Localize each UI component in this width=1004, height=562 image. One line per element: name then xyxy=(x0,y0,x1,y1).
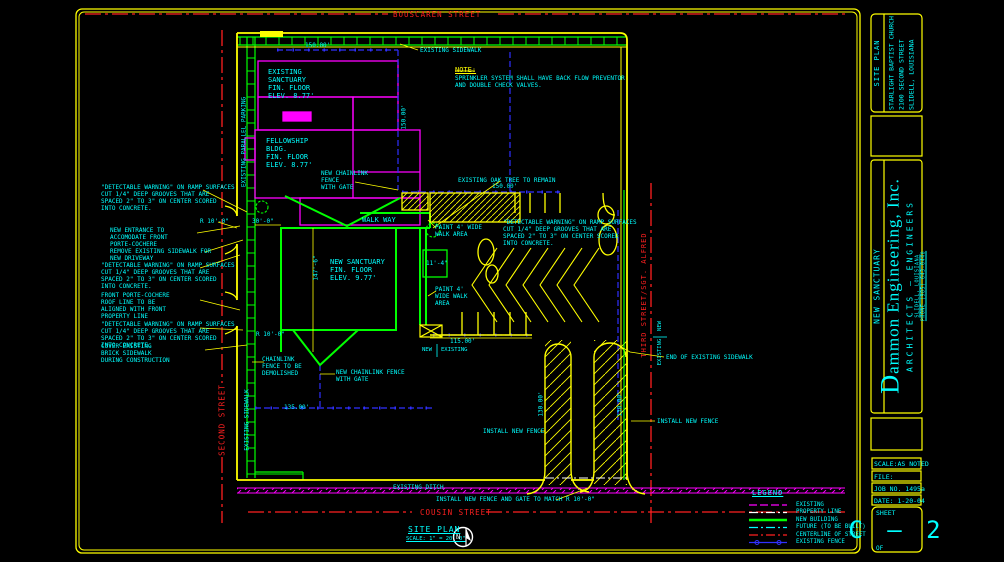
legend-item-property-line: PROPERTY LINE xyxy=(796,509,841,515)
note-detectable-warning-1: "DETECTABLE WARNING" ON RAMP SURFACES CU… xyxy=(101,184,235,212)
dim-radius-1: R 10'-0" xyxy=(200,218,229,225)
dimension-lines xyxy=(255,225,532,352)
plan-title: SITE PLAN xyxy=(408,525,460,534)
titleblock-sheet-number: C — 2 xyxy=(848,516,945,544)
titleblock-of-label: OF xyxy=(876,545,883,552)
walkway-label: WALK WAY xyxy=(362,216,396,224)
marker-existing-bottom: EXISTING xyxy=(441,347,468,353)
note-paint-walk-1: PAINT 4' WIDE WALK AREA xyxy=(435,224,482,238)
street-name-third: THIRD STREET/SGT. ALFRED xyxy=(640,232,648,357)
titleblock-sheet-title: SITE PLAN xyxy=(873,40,881,87)
titleblock-file: FILE: xyxy=(874,473,894,481)
firm-phone: PHONE (985) 643-0448 xyxy=(921,178,927,394)
note-paint-walk-2: PAINT 4' WIDE WALK AREA xyxy=(435,286,468,307)
street-name-cousin: COUSIN STREET xyxy=(420,508,492,517)
note-existing-sidewalk-left: EXISTING SIDEWALK xyxy=(243,389,250,450)
legend-samples xyxy=(749,505,787,545)
dim-drive-west: 130.00' xyxy=(538,391,545,416)
note-detectable-warning-4: "DETECTABLE WARNING" ON RAMP SURFACES CU… xyxy=(503,219,637,247)
note-new-chainlink-gate: NEW CHAINLINK FENCE WITH GATE xyxy=(321,170,368,191)
fellowship-bldg-label: FELLOWSHIP BLDG. FIN. FLOOR ELEV. 8.77' xyxy=(266,137,312,169)
dim-radius-2: R 10'-0" xyxy=(256,331,285,338)
note-install-gate: INSTALL NEW FENCE AND GATE TO MATCH xyxy=(436,496,562,503)
north-letter: N xyxy=(456,533,460,541)
note-chainlink-demolished: CHAINLINK FENCE TO BE DEMOLISHED xyxy=(262,356,302,377)
dim-south-width: 135.00' xyxy=(284,404,309,411)
titleblock-job: JOB NO. 1495a xyxy=(874,485,925,493)
firm-name: Dammon Engineering, Inc. xyxy=(876,178,906,394)
legend-item-existing: EXISTING xyxy=(796,502,824,508)
dim-south-parking: 115.00' xyxy=(450,338,475,345)
titleblock-firm: Dammon Engineering, Inc. ARCHITECTS — EN… xyxy=(876,178,927,394)
project-name: STARLIGHT BAPTIST CHURCH xyxy=(887,16,897,110)
legend-item-existing-fence: EXISTING FENCE xyxy=(796,539,845,545)
dim-wing-width: 30'-0" xyxy=(252,218,274,225)
dim-building-depth: 147'-6" xyxy=(313,255,320,280)
sprinkler-note-body: SPRINKLER SYSTEM SHALL HAVE BACK FLOW PR… xyxy=(455,75,625,89)
note-parallel-parking: EXISTING PARALLEL PARKING xyxy=(240,97,247,187)
existing-sanctuary-label: EXISTING SANCTUARY FIN. FLOOR ELEV. 8.77… xyxy=(268,68,314,100)
dim-top-width: 150.00' xyxy=(305,42,330,49)
cad-sheet: BOUSCAREN STREET SECOND STREET THIRD STR… xyxy=(0,0,1004,562)
dim-west-side: 150.00' xyxy=(401,104,408,129)
dim-radius-3: R 10'-0" xyxy=(566,496,595,503)
note-existing-sidewalk-top: EXISTING SIDEWALK xyxy=(420,47,481,54)
street-name-second: SECOND STREET xyxy=(218,384,227,456)
dim-fence-north: 150.00' xyxy=(492,183,517,190)
marker-new-bottom: NEW xyxy=(422,347,432,353)
project-city: SLIDELL, LOUISIANA xyxy=(907,16,917,110)
titleblock-date: DATE: 1-20-04 xyxy=(874,497,925,505)
note-cover-sidewalk: COVER EXISTING BRICK SIDEWALK DURING CON… xyxy=(101,343,170,364)
marker-existing-right: EXISTING xyxy=(657,339,663,366)
marker-new-right: NEW xyxy=(657,321,663,331)
note-remove-sidewalk: REMOVE EXISTING SIDEWALK FOR NEW DRIVEWA… xyxy=(110,248,211,262)
legend-item-new-building: NEW BUILDING xyxy=(796,517,838,523)
note-new-chainlink-gate-2: NEW CHAINLINK FENCE WITH GATE xyxy=(336,369,405,383)
new-sanctuary-label: NEW SANCTUARY FIN. FLOOR ELEV. 9.77' xyxy=(330,258,385,282)
project-street: 2100 SECOND STREET xyxy=(897,16,907,110)
firm-subtitle: ARCHITECTS — ENGINEERS xyxy=(906,178,915,394)
note-install-fence-left: INSTALL NEW FENCE xyxy=(483,428,544,435)
street-name-bouscaren: BOUSCAREN STREET xyxy=(393,10,481,19)
note-porte-cochere: FRONT PORTE-COCHERE ROOF LINE TO BE ALIG… xyxy=(101,292,170,320)
note-end-existing-sidewalk: END OF EXISTING SIDEWALK xyxy=(666,354,753,361)
dim-walk-width: 11'-4" xyxy=(426,260,448,267)
note-new-entrance: NEW ENTRANCE TO ACCOMODATE FRONT PORTE-C… xyxy=(110,227,168,248)
note-detectable-warning-2: "DETECTABLE WARNING" ON RAMP SURFACES CU… xyxy=(101,262,235,290)
note-install-fence-right: INSTALL NEW FENCE xyxy=(657,418,718,425)
note-existing-ditch: EXISTING DITCH xyxy=(393,484,444,491)
titleblock-project-address: STARLIGHT BAPTIST CHURCH 2100 SECOND STR… xyxy=(887,16,916,110)
legend-title: LEGEND xyxy=(752,489,783,497)
titleblock-scale: SCALE:AS NOTED xyxy=(874,460,929,468)
sprinkler-note-heading: NOTE: xyxy=(455,66,476,74)
dim-drive-east: 130.00' xyxy=(617,391,624,416)
